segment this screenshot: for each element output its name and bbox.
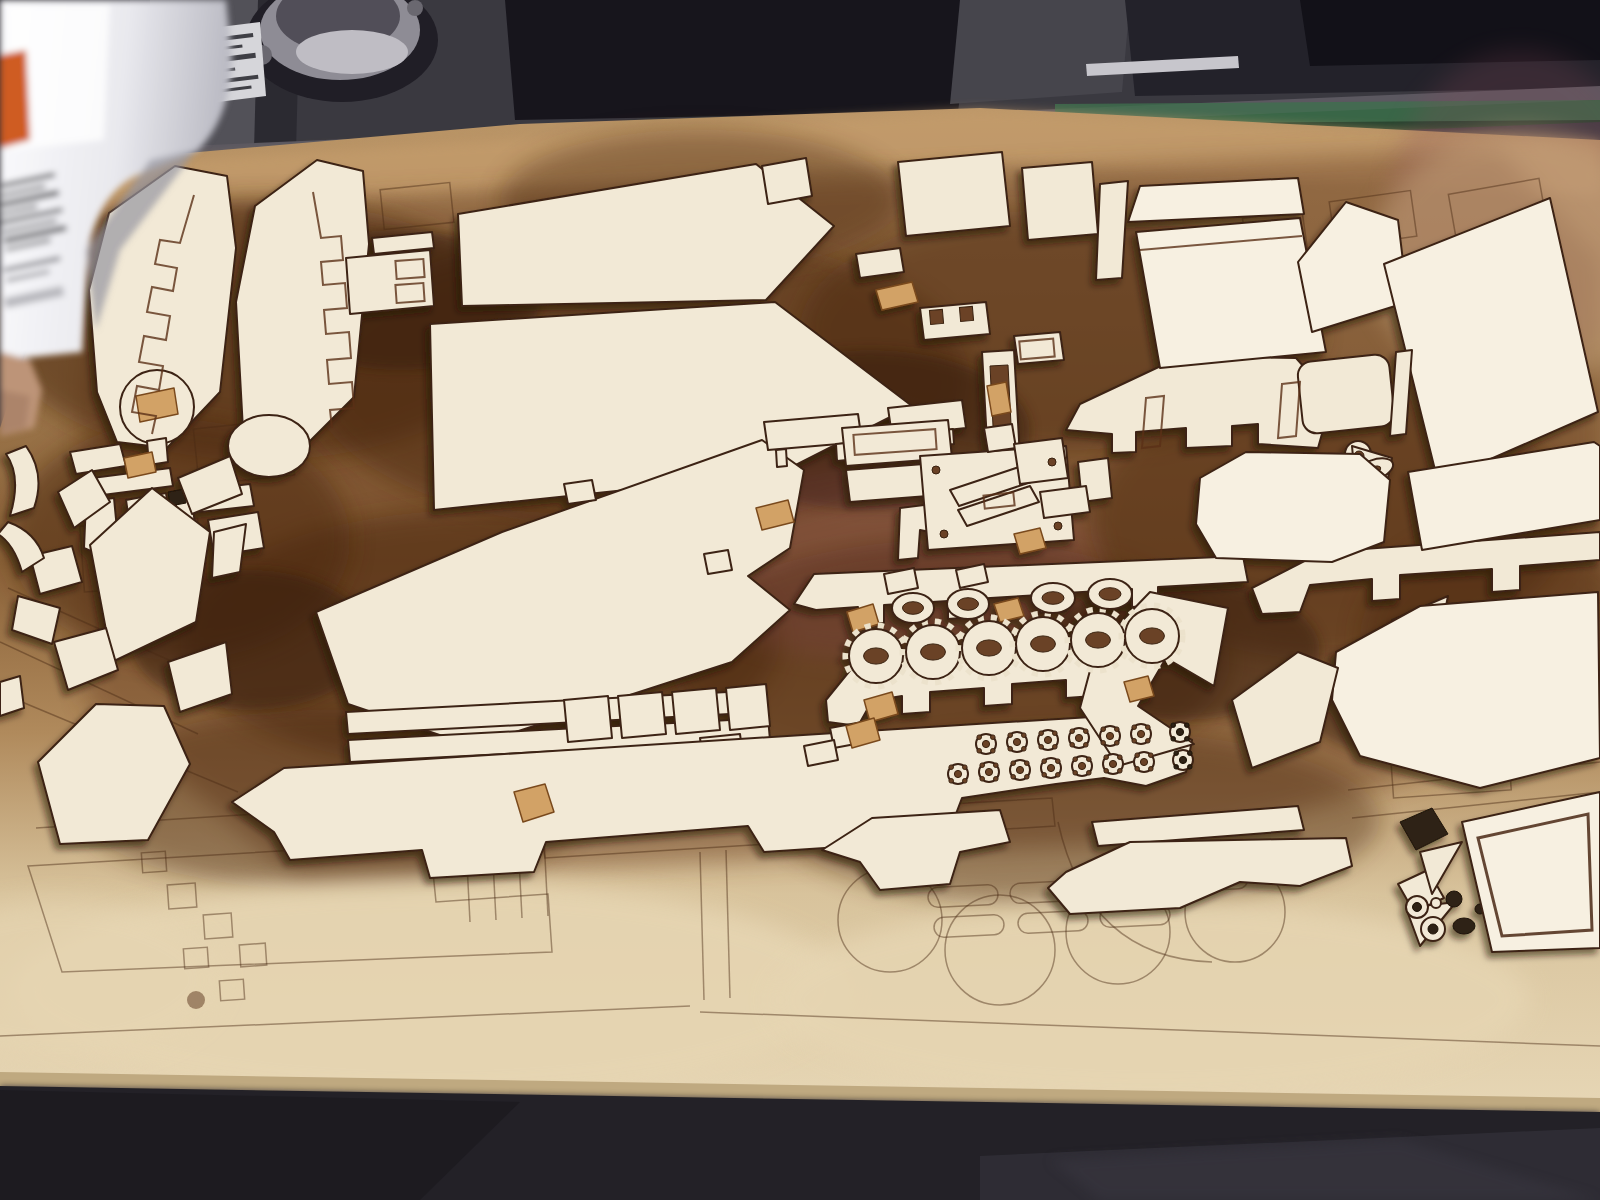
wheel-hub-notch [977,735,982,740]
wheel-hub-notch [1135,767,1140,772]
wheel-hub-center [982,740,989,747]
sprocket-gear-hole [977,640,1002,656]
small-square [618,692,666,738]
wheel-hub-notch [1146,739,1151,744]
wheel-hub-center [985,768,992,775]
wheel-hub-notch [1115,741,1120,746]
wheel-hub-notch [1174,751,1179,756]
staple-notch [959,306,973,321]
wheel-hub-center [1109,760,1116,767]
wheel-hub-notch [1011,775,1016,780]
large-panel [1136,218,1326,368]
wheel-hub-notch [1053,745,1058,750]
wheel-hub-notch [1104,769,1109,774]
wheel-hub-notch [1146,725,1151,730]
wheel-hub-notch [1101,741,1106,746]
small-part [1014,438,1068,484]
wheel-hub-notch [963,779,968,784]
wheel-hub-notch [949,779,954,784]
small-panel [762,158,812,204]
wheel-hub-notch [1132,725,1137,730]
small-square [726,684,770,730]
wheel-hub-notch [994,763,999,768]
wheel-hub-center [954,770,961,777]
cutout-hole [1453,918,1475,934]
wheel-hub-notch [1025,761,1030,766]
plate-screw-hole [1054,522,1062,530]
wheel-hub-notch [980,777,985,782]
wheel-hub-notch [1084,743,1089,748]
wheel-hub-notch [1101,727,1106,732]
octagon-plate [1196,452,1390,562]
wheel-hub-center [1016,766,1023,773]
plate-screw-hole [932,466,940,474]
wheel-hub-notch [963,765,968,770]
plate-screw-hole [940,530,948,538]
wheel-hub-center [1044,736,1051,743]
wheel-hub-notch [977,749,982,754]
wheel-hub-notch [1056,759,1061,764]
wheel-hub-notch [994,777,999,782]
sprocket-gear-hole [864,648,889,664]
wheel-hub-notch [991,749,996,754]
flipped-chip [987,382,1011,416]
wheel-hub-notch [1171,737,1176,742]
rounded-square-plate [1296,353,1395,434]
sprocket-gear-hole [921,644,946,660]
machine-screw [407,0,423,16]
wheel-hub-notch [980,763,985,768]
wheel-hub-center [1106,732,1113,739]
wheel-hub-notch [1149,753,1154,758]
wheel-hub-notch [1132,739,1137,744]
washer-hole [1413,903,1422,912]
wheel-hub-notch [1022,747,1027,752]
finger-shade [0,390,30,434]
wheel-hub-center [1075,734,1082,741]
plate-screw-hole [1048,458,1056,466]
wheel-hub-notch [1070,729,1075,734]
wheel-hub-notch [1056,773,1061,778]
wheel-hub-notch [1087,757,1092,762]
photo-stage [0,0,1600,1200]
panel-strip [1128,178,1304,222]
small-bar [856,248,904,278]
wheel-hub-notch [1087,771,1092,776]
wheel-hub-notch [1084,729,1089,734]
wheel-hub-notch [1118,769,1123,774]
wheel-hub-notch [1135,753,1140,758]
wheel-hub-notch [1171,723,1176,728]
wheel-hub-notch [1188,765,1193,770]
oval-ring-hole [1042,592,1064,605]
wheel-hub-notch [1008,733,1013,738]
wheel-hub-notch [1053,731,1058,736]
machine-mid-panel [950,0,1130,104]
laser-cut-scene [0,0,1600,1200]
wheel-hub-notch [1022,733,1027,738]
wheel-hub-center [1078,762,1085,769]
cutout-hole [1446,891,1462,907]
small-chip [704,550,732,574]
wheel-hub-center [1013,738,1020,745]
wheel-hub-notch [1039,731,1044,736]
sprocket-gear-hole [1140,628,1165,644]
lens-glint [296,30,408,74]
wheel-hub-notch [1185,723,1190,728]
washer-hole [1428,924,1438,934]
round-plate [228,415,310,477]
wheel-hub-notch [1149,767,1154,772]
wheel-hub-center [1137,730,1144,737]
wheel-hub-notch [1073,771,1078,776]
turret-side [212,524,246,578]
oval-ring-hole [903,602,924,615]
small-square [564,696,612,742]
staple-notch [929,309,943,324]
orange-label-chip [0,50,30,148]
small-disc [1431,898,1441,908]
machine-slot-opening [505,0,972,120]
small-part [984,424,1016,452]
wheel-hub-notch [1042,773,1047,778]
wheel-hub-notch [1025,775,1030,780]
wheel-hub-notch [1115,727,1120,732]
wheel-hub-notch [1039,745,1044,750]
wheel-hub-notch [1104,755,1109,760]
wheel-hub-notch [1070,743,1075,748]
small-part [1040,486,1090,518]
wheel-hub-notch [1073,757,1078,762]
wheel-hub-notch [1174,765,1179,770]
wheel-hub-center [1140,758,1147,765]
wheel-hub-notch [991,735,996,740]
wheel-hub-notch [1185,737,1190,742]
wheel-hub-center [1047,764,1054,771]
oval-ring-hole [958,598,979,611]
wheel-hub-notch [1042,759,1047,764]
narrow-panel [1096,181,1128,280]
wheel-hub-notch [949,765,954,770]
bench-leg [776,449,787,467]
sprocket-gear-hole [1086,632,1111,648]
burn-blob [187,991,205,1009]
wheel-hub-center [1176,728,1183,735]
wheel-hub-notch [1118,755,1123,760]
wheel-hub-notch [1188,751,1193,756]
wheel-hub-notch [1008,747,1013,752]
roof-panel [898,152,1010,236]
sprocket-gear-hole [1031,636,1056,652]
wheel-hub-center [1179,756,1186,763]
edge-wedge [0,676,24,716]
roof-panel [1022,162,1098,240]
wheel-hub-notch [1011,761,1016,766]
small-chip [564,480,596,504]
oval-ring-hole [1099,588,1121,601]
small-square [672,688,720,734]
